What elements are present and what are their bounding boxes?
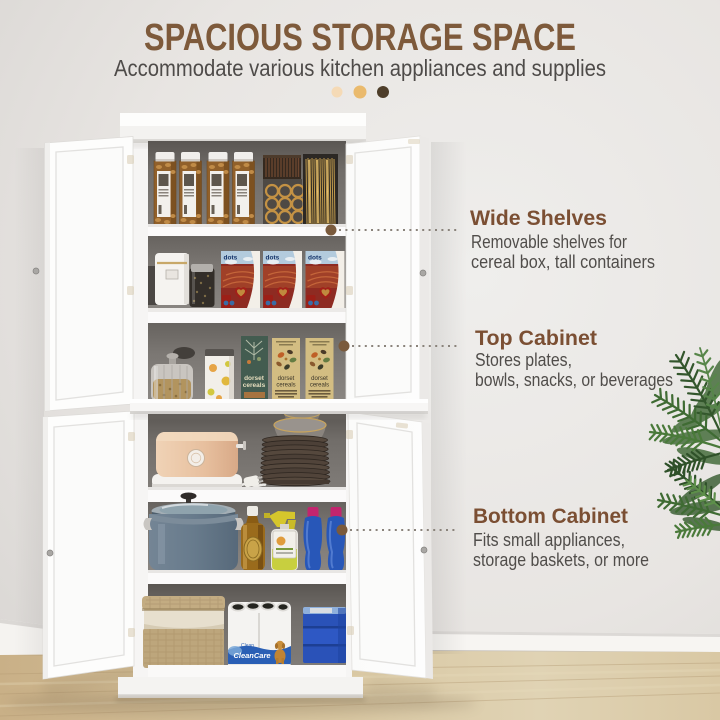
svg-text:Stores plates,: Stores plates, [475,350,572,370]
svg-text:dorset: dorset [244,375,265,382]
svg-text:CleanCare: CleanCare [233,651,270,660]
svg-text:Accommodate various kitchen ap: Accommodate various kitchen appliances a… [114,55,606,81]
svg-text:storage baskets, or more: storage baskets, or more [473,550,649,570]
svg-text:Clean: Clean [241,643,254,649]
svg-text:Wide Shelves: Wide Shelves [470,206,607,230]
svg-text:Fits small appliances,: Fits small appliances, [473,530,625,550]
svg-text:cereals: cereals [243,382,266,389]
svg-text:bowls, snacks, or beverages: bowls, snacks, or beverages [475,370,673,390]
svg-text:SPACIOUS STORAGE SPACE: SPACIOUS STORAGE SPACE [144,17,576,59]
svg-text:Removable shelves for: Removable shelves for [471,232,627,252]
svg-text:Top Cabinet: Top Cabinet [475,326,597,350]
svg-text:cereal box, tall containers: cereal box, tall containers [471,252,655,272]
svg-text:Bottom Cabinet: Bottom Cabinet [473,504,628,528]
